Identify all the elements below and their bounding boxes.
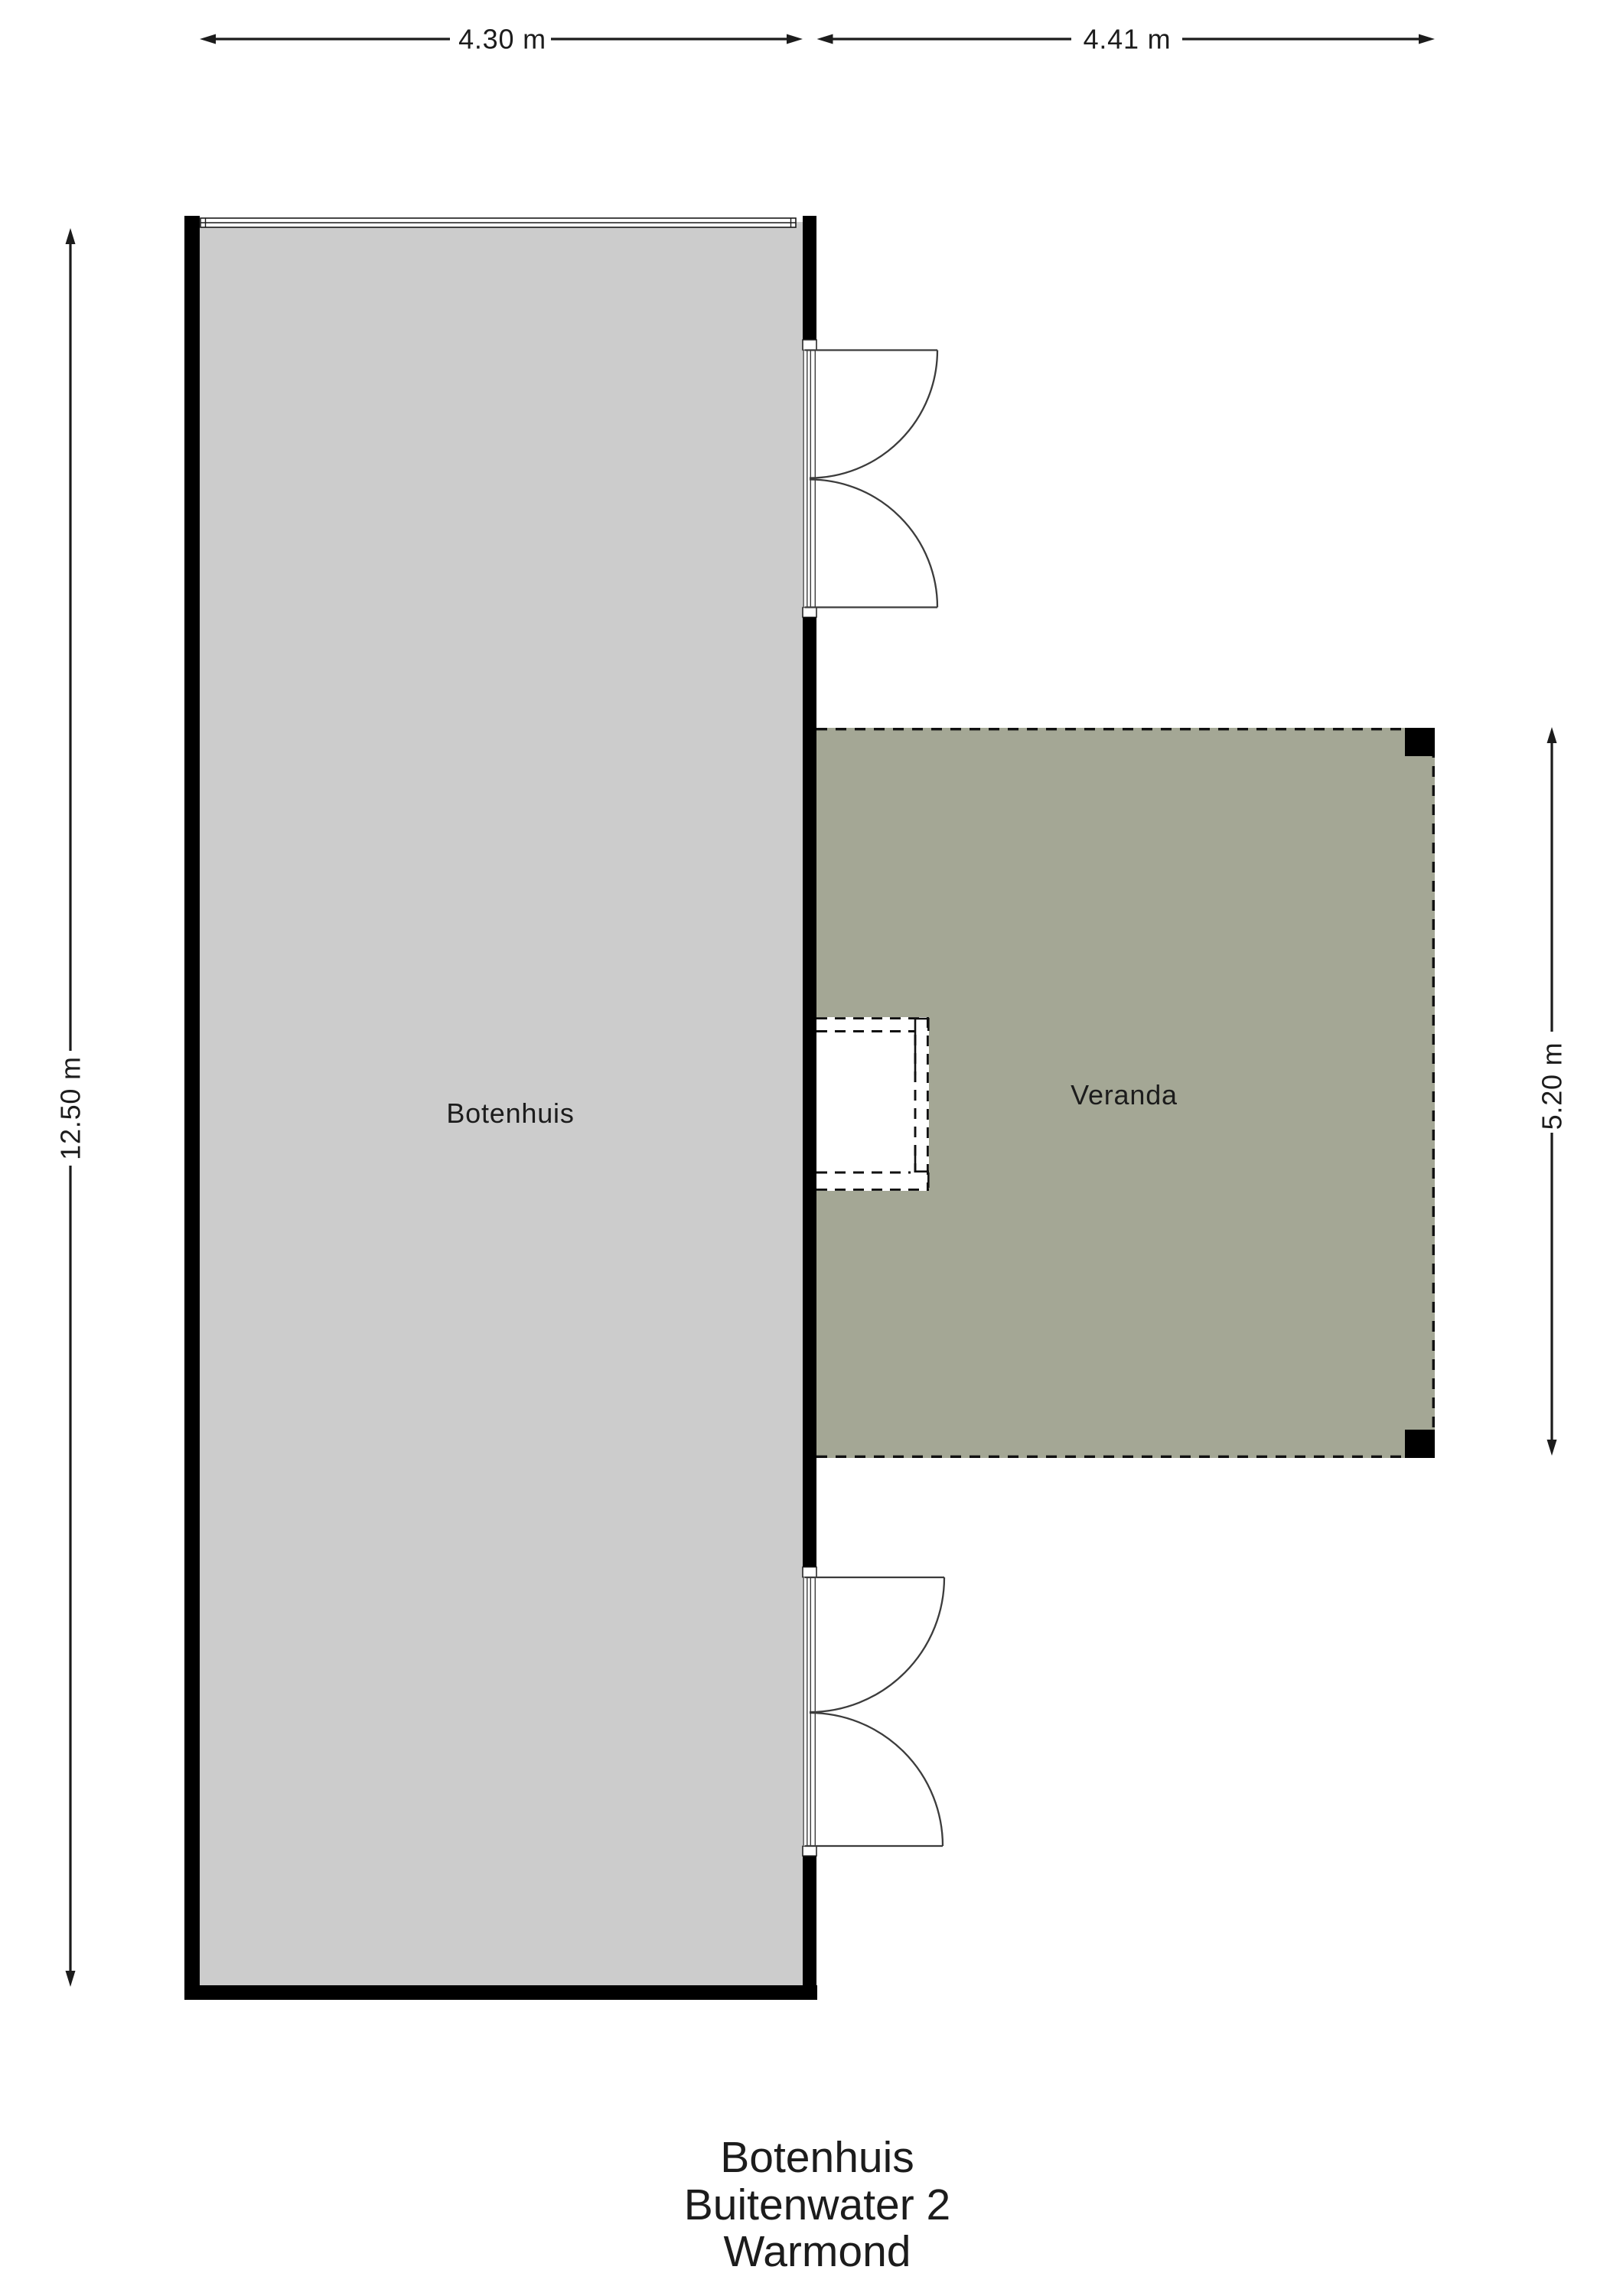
svg-text:12.50 m: 12.50 m — [55, 1056, 86, 1160]
svg-text:Botenhuis: Botenhuis — [720, 2133, 914, 2182]
svg-text:4.41 m: 4.41 m — [1084, 24, 1172, 55]
svg-text:5.20 m: 5.20 m — [1537, 1042, 1568, 1130]
svg-text:Veranda: Veranda — [1071, 1079, 1178, 1110]
svg-text:Buitenwater 2: Buitenwater 2 — [684, 2180, 951, 2229]
svg-text:4.30 m: 4.30 m — [458, 24, 546, 55]
svg-text:Warmond: Warmond — [724, 2227, 911, 2276]
svg-text:Botenhuis: Botenhuis — [446, 1097, 574, 1129]
